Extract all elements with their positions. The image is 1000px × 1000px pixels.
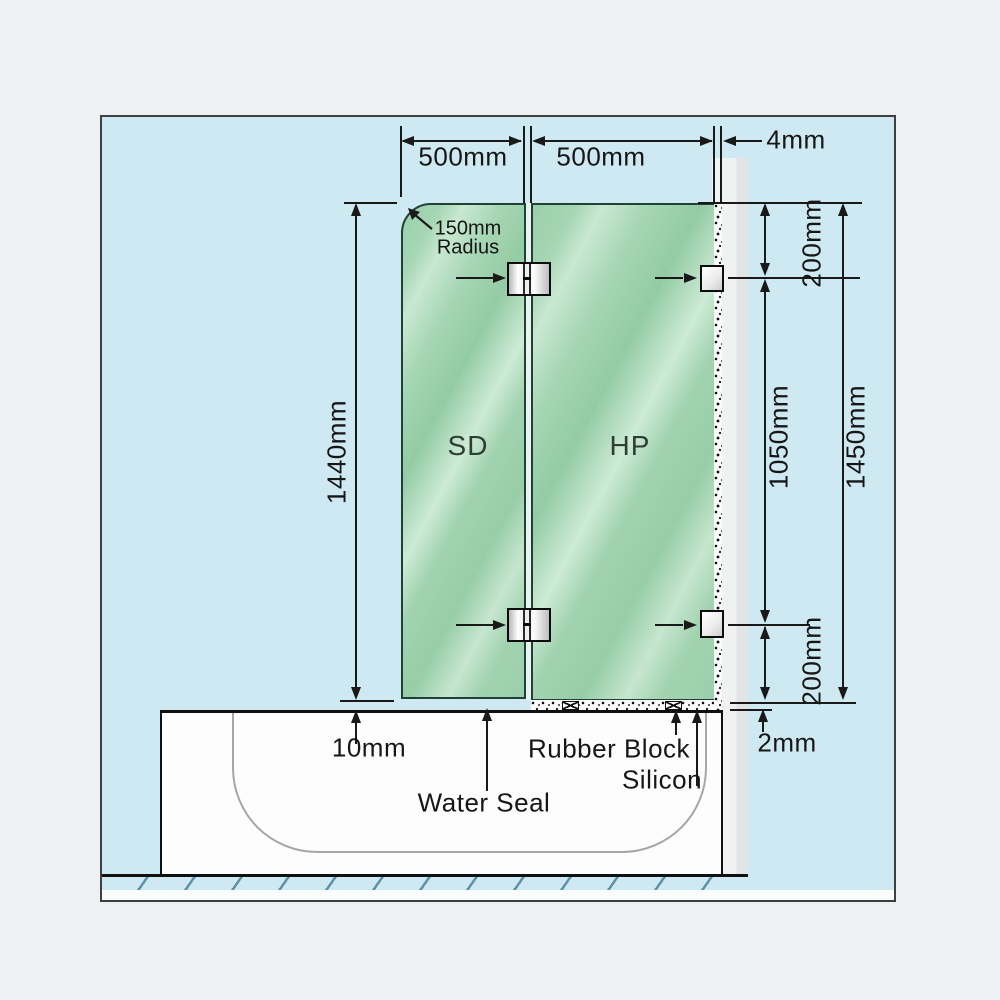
label-door-gap: 10mm [332,733,406,764]
arrowhead [723,136,736,146]
dim-line-wall-gap [736,140,762,142]
dim-label-bottom-offset: 200mm [797,616,828,705]
dim-label-wall-gap: 4mm [766,125,825,156]
rubber-block-right [665,701,682,710]
arrowhead [838,687,848,700]
pointer-line-bracket-bottom [655,624,683,626]
arrowhead [700,136,713,146]
pointer-line-hinge-top [456,277,494,279]
dim-label-hp-height: 1450mm [841,385,872,489]
radius-arrow-icon [405,205,437,233]
hinge-pin [523,623,531,626]
page-background: { "diagram": { "type": "shower-screen-in… [0,0,1000,1000]
panel-label-sd: SD [448,430,489,462]
arrowhead [401,136,414,146]
silicon-strip-bottom [531,700,714,710]
arrowhead [493,273,506,283]
arrowhead [684,620,697,630]
arrowhead [509,136,522,146]
label-water-seal: Water Seal [418,788,551,819]
dim-line-sd-height [355,207,357,689]
hinge-bottom [507,608,551,642]
dim-label-sd-height: 1440mm [322,400,353,504]
arrowhead [760,203,770,216]
arrowhead [482,708,492,721]
dim-label-sd-width: 500mm [418,142,507,173]
dim-label-top-offset: 200mm [797,198,828,287]
tick-line [730,702,856,704]
hinge-pin [523,277,531,280]
tick-line [728,277,860,279]
arrowhead [351,203,361,216]
label-rubber-block: Rubber Block [528,734,690,765]
pointer-line-bracket-top [655,277,683,279]
label-silicon: Silicon [622,765,702,796]
dim-label-hp-width: 500mm [556,142,645,173]
wall [722,158,748,874]
rubber-block-left [562,701,579,710]
wall-bracket-top [700,265,724,292]
radius-label-word: Radius [437,237,499,260]
arrowhead [493,620,506,630]
arrowhead [351,710,361,723]
arrowhead [671,710,681,723]
arrowhead [532,136,545,146]
arrowhead [692,710,702,723]
arrowhead [760,263,770,276]
arrowhead [684,273,697,283]
arrowhead [760,626,770,639]
floor-margin [102,890,894,900]
dim-label-base-gap: 2mm [757,728,816,759]
diagram-frame: 500mm 500mm 4mm 150mm Radius 1440mm 200m… [100,115,896,902]
arrowhead [760,279,770,292]
arrowhead [351,687,361,700]
pointer-line-hinge-bottom [456,624,494,626]
arrowhead [758,709,768,722]
arrowhead [760,687,770,700]
arrowhead [760,610,770,623]
wall-bracket-bottom [700,610,724,638]
hinge-top [507,262,551,296]
tick-line [340,700,394,702]
pointer-line-water-seal [486,715,488,791]
floor-hatch [102,877,748,890]
extension-line [523,126,525,203]
arrowhead [838,203,848,216]
panel-label-hp: HP [610,430,651,462]
extension-line [720,126,722,203]
extension-line [713,126,715,203]
dim-label-bracket-spacing: 1050mm [764,385,795,489]
